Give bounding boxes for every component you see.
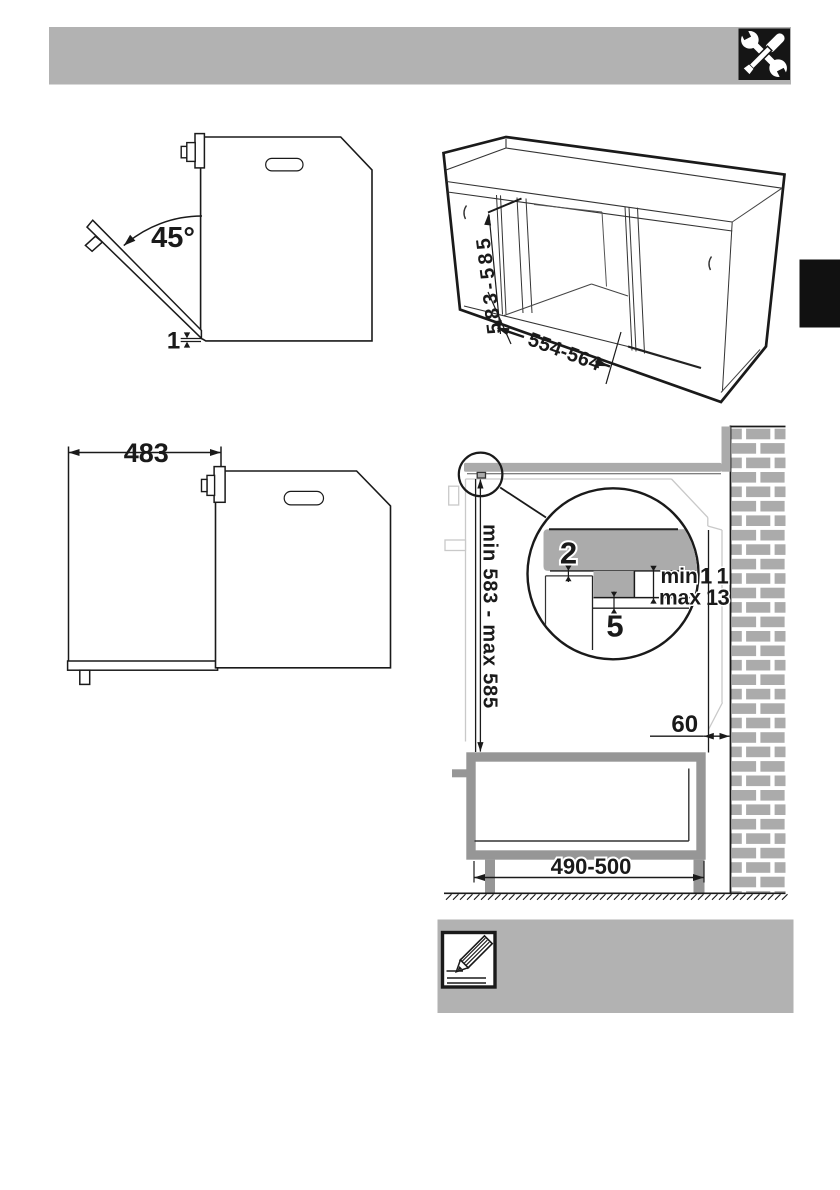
svg-text:3: 3 [718,585,730,610]
svg-text:1: 1 [167,328,180,355]
svg-text:60: 60 [671,711,698,738]
svg-text:45°: 45° [151,222,195,254]
svg-text:5: 5 [606,609,623,644]
svg-text:1: 1 [706,585,718,610]
svg-text:max: max [659,587,701,610]
svg-text:min 583 - max 585: min 583 - max 585 [479,524,501,709]
svg-text:490-500: 490-500 [551,854,632,879]
svg-text:min: min [661,565,698,588]
svg-text:2: 2 [560,536,577,571]
